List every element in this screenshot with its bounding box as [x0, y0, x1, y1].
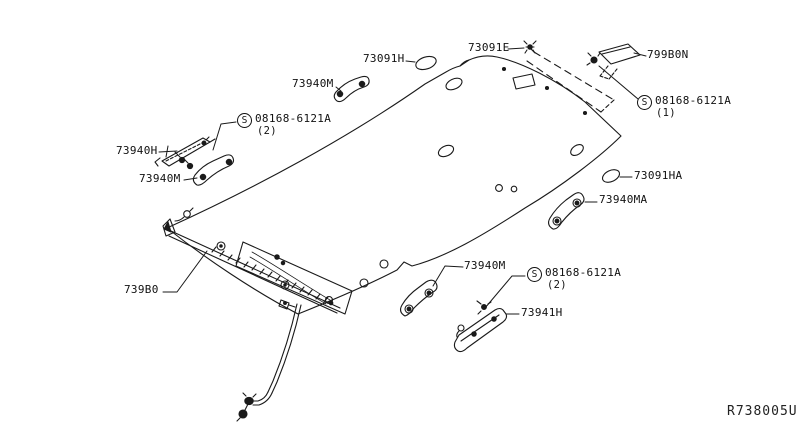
- grommet-73091HA: [601, 167, 622, 185]
- callout-73940M-left[interactable]: 73940M: [139, 173, 181, 185]
- grip-73940M-left: [193, 155, 233, 185]
- console-lid-799B0N: [587, 44, 640, 79]
- callout-73091HA[interactable]: 73091HA: [634, 170, 682, 182]
- callout-screw-qty-2: (2): [257, 125, 277, 137]
- callout-73940H[interactable]: 73940H: [116, 145, 158, 157]
- screw-symbol-icon[interactable]: S: [237, 113, 252, 128]
- grommet-73091H: [414, 54, 438, 72]
- callout-73091H[interactable]: 73091H: [363, 53, 405, 65]
- grip-73940M-bottom: [401, 280, 437, 316]
- callout-screw-code-3[interactable]: 08168-6121A: [545, 267, 621, 279]
- clip-73091E: [524, 41, 536, 53]
- callout-73091E[interactable]: 73091E: [468, 42, 510, 54]
- callout-73941H[interactable]: 73941H: [521, 307, 563, 319]
- hidden-edge-dashes: [527, 49, 614, 112]
- grip-73940MA-right: [549, 193, 584, 229]
- bracket-73940H: [155, 137, 215, 169]
- diagram-linework: [0, 0, 800, 438]
- callout-73940M-top[interactable]: 73940M: [292, 78, 334, 90]
- callout-73940M-bottom[interactable]: 73940M: [464, 260, 506, 272]
- assembly-739B0: [163, 208, 352, 421]
- callout-screw-qty-1: (1): [656, 107, 676, 119]
- bracket-73941H: [454, 301, 506, 352]
- grip-73940M-top: [334, 76, 369, 101]
- diagram-ref-code: R738005U: [727, 404, 798, 419]
- callout-screw-qty-3: (2): [547, 279, 567, 291]
- callout-screw-code-1[interactable]: 08168-6121A: [655, 95, 731, 107]
- callout-739B0[interactable]: 739B0: [124, 284, 159, 296]
- callout-screw-code-2[interactable]: 08168-6121A: [255, 113, 331, 125]
- screw-symbol-icon[interactable]: S: [637, 95, 652, 110]
- parts-diagram-canvas: 73091H 73091E 799B0N 73940M 73940H 73940…: [0, 0, 800, 438]
- callout-73940MA[interactable]: 73940MA: [599, 194, 647, 206]
- callout-799B0N[interactable]: 799B0N: [647, 49, 689, 61]
- screw-symbol-icon[interactable]: S: [527, 267, 542, 282]
- panel-holes: [360, 68, 587, 288]
